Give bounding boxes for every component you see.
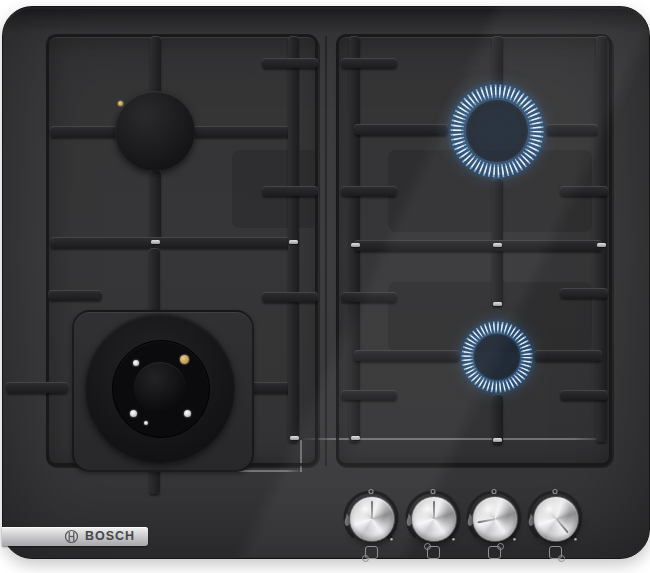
pan-support-bar: [596, 36, 607, 442]
pan-support-bar: [354, 350, 460, 361]
pan-support-bar: [560, 390, 608, 400]
metal-glint: [133, 360, 139, 366]
pan-support-bar: [149, 248, 160, 314]
knob-dial[interactable]: [411, 496, 457, 542]
knob-pointer: [555, 518, 568, 533]
knob-back-left[interactable]: [401, 486, 465, 560]
pan-support-bar: [560, 186, 608, 196]
support-connector: [351, 436, 360, 440]
spark-igniter: [180, 355, 189, 364]
metal-glint: [184, 410, 191, 417]
pan-support-bar: [341, 58, 397, 68]
pan-support-bar: [48, 290, 102, 300]
support-connector: [351, 243, 360, 247]
burner-back-left: [115, 91, 195, 171]
support-connector: [290, 436, 299, 440]
support-connector: [289, 240, 298, 244]
burner-front-right-flame-ring: [447, 307, 547, 407]
support-connector: [597, 243, 606, 247]
spark-igniter: [118, 101, 123, 106]
bosch-armature-icon: [64, 529, 79, 544]
pan-support-bar: [341, 186, 397, 196]
knob-front-right[interactable]: [523, 486, 587, 560]
metal-glint: [130, 410, 137, 417]
pan-support-bar: [150, 36, 161, 94]
pan-support-bar: [341, 292, 397, 302]
support-connector: [493, 243, 502, 247]
pan-support-bar: [150, 170, 161, 242]
glass-seam: [325, 36, 327, 466]
support-connector: [151, 240, 160, 244]
knob-dial[interactable]: [533, 496, 579, 542]
metal-glint: [144, 421, 148, 425]
knob-pointer: [477, 518, 495, 523]
burner-position-icon: [365, 546, 378, 559]
burner-position-icon: [488, 546, 501, 559]
pan-support-bar: [6, 382, 68, 393]
product-photo-gas-hob: BOSCH: [0, 0, 650, 573]
knob-dial[interactable]: [349, 496, 395, 542]
burner-position-icon: [549, 546, 562, 559]
pan-support-bar: [193, 126, 298, 137]
brand-name: BOSCH: [85, 530, 135, 543]
pan-support-bar: [560, 288, 608, 298]
knob-front-left[interactable]: [339, 486, 403, 560]
pan-support-bar: [262, 292, 318, 302]
knob-back-right[interactable]: [462, 486, 526, 560]
pan-support-bar: [354, 124, 448, 135]
pan-support-bar: [50, 237, 298, 248]
pan-support-bar: [262, 186, 318, 196]
knob-pointer: [371, 501, 373, 519]
pan-support-bar: [288, 36, 299, 442]
burner-back-right-flame-ring: [437, 71, 557, 191]
support-connector: [493, 438, 502, 442]
knob-pointer: [433, 501, 435, 519]
pan-support-bar: [349, 36, 360, 442]
burner-position-icon: [427, 546, 440, 559]
support-connector: [493, 302, 502, 306]
pan-support-bar: [262, 58, 318, 68]
pan-support-bar: [341, 390, 397, 400]
brand-badge: BOSCH: [2, 527, 148, 546]
knob-dial[interactable]: [472, 496, 518, 542]
wok-burner-center: [134, 362, 186, 414]
pan-support-bar: [354, 240, 602, 251]
pan-support-bar: [50, 126, 118, 137]
